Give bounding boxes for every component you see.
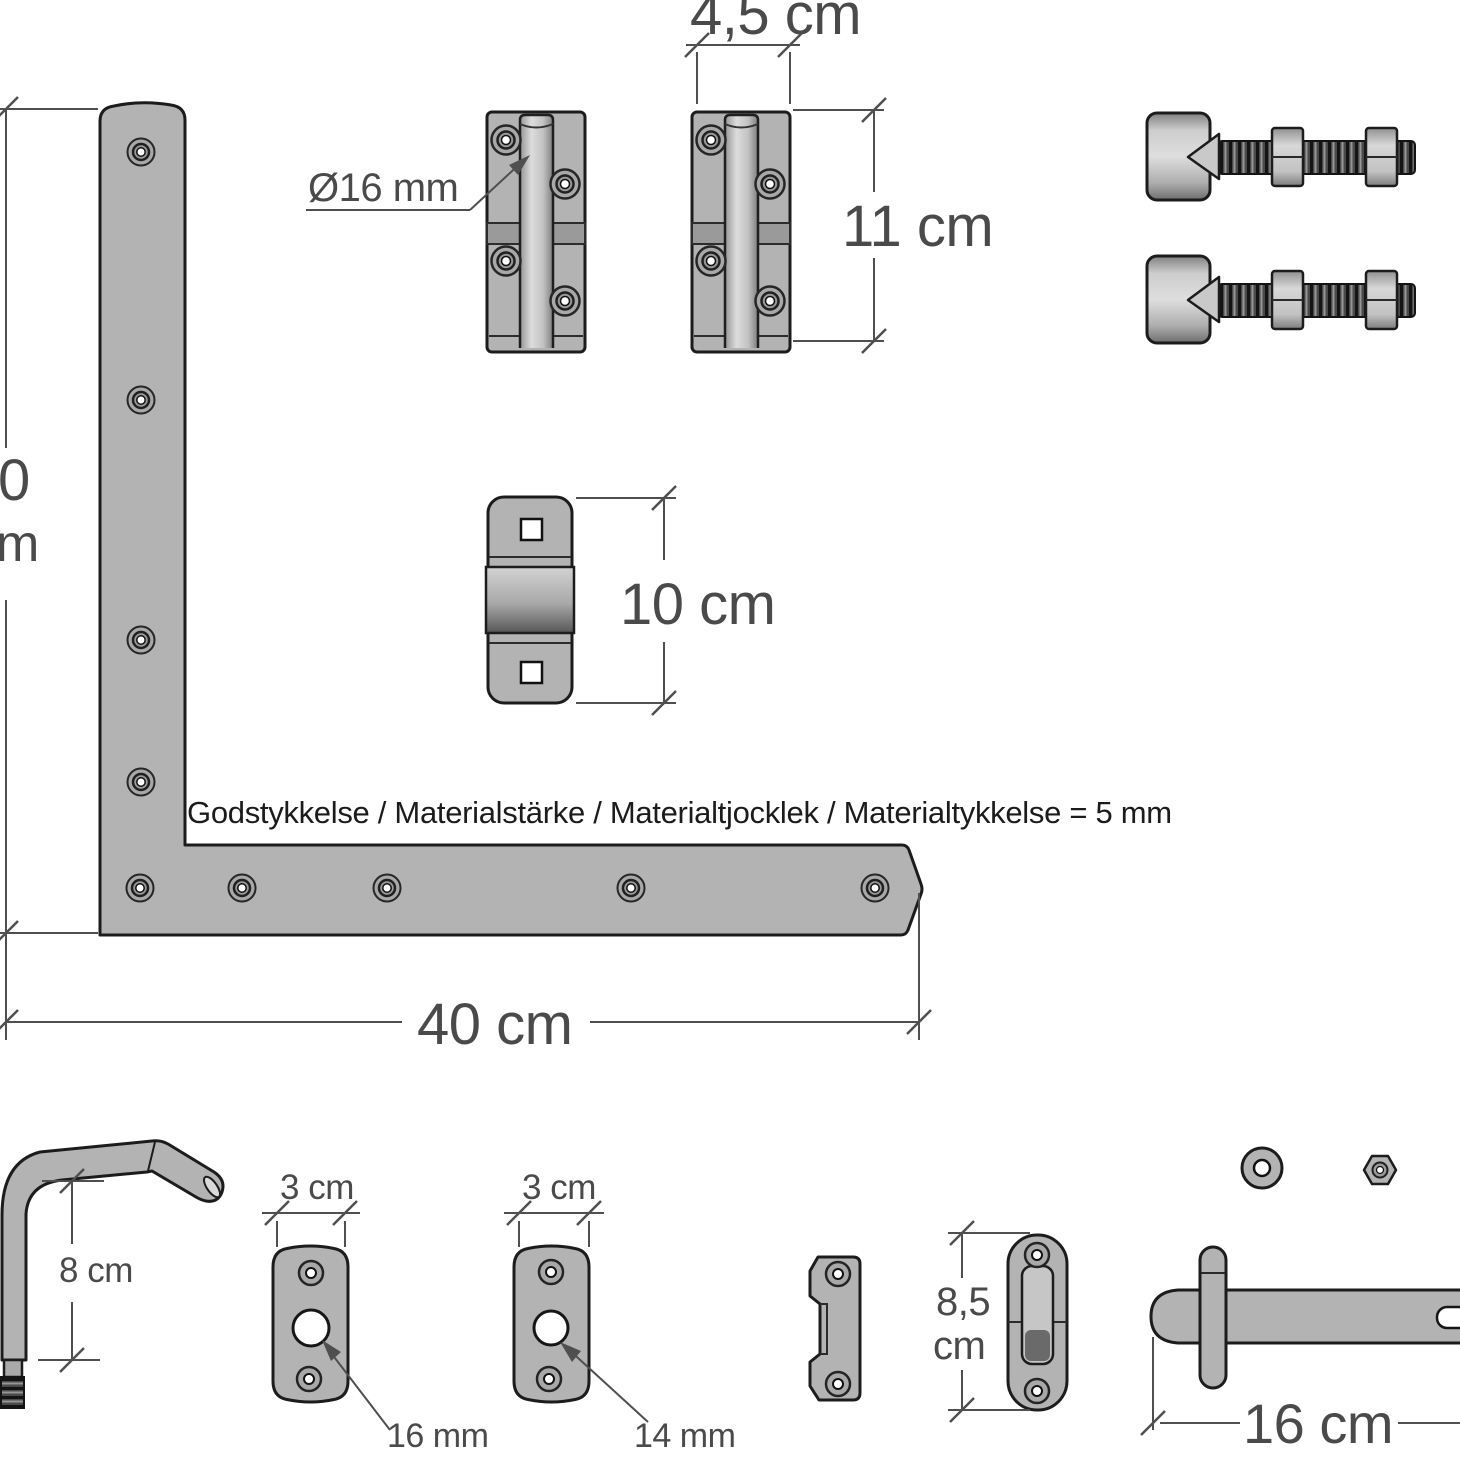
hardware-drawing	[0, 0, 1460, 1460]
label-latch-keeper-height-unit: cm	[933, 1326, 985, 1366]
technical-drawing-canvas: 4,5 cm 11 cm Ø16 mm 0 m 10 cm Godstykkel…	[0, 0, 1460, 1460]
adjustable-hinge-bolt-top	[1147, 113, 1415, 200]
screw-hole	[618, 875, 645, 902]
latch-keeper-side-view	[810, 1257, 860, 1400]
screw-hole	[128, 627, 155, 654]
screw-hole	[297, 1367, 321, 1391]
adjustable-hinge-bolt-bottom	[1147, 256, 1415, 343]
screw-hole	[826, 1372, 850, 1396]
dimension-plate1-width	[262, 1201, 360, 1247]
drop-bolt-bar	[1151, 1290, 1460, 1343]
label-keeper-height: 10 cm	[620, 576, 775, 634]
latch-keeper-front-view	[1008, 1235, 1067, 1410]
label-drop-bolt-length: 16 cm	[1243, 1396, 1393, 1452]
label-hinge-width: 4,5 cm	[690, 0, 861, 44]
square-hole	[521, 519, 542, 540]
label-plate1-hole: 16 mm	[387, 1419, 488, 1453]
center-hole-14mm	[534, 1311, 568, 1345]
label-plate2-hole: 14 mm	[634, 1419, 735, 1453]
label-plate1-width: 3 cm	[280, 1170, 354, 1205]
label-strap-height-clipped-unit: m	[0, 518, 39, 570]
square-hole	[521, 662, 542, 683]
label-latch-keeper-height-value: 8,5	[936, 1282, 990, 1322]
mounting-plate-16mm	[273, 1246, 348, 1402]
pin-thread	[1, 1377, 24, 1408]
label-material-note: Godstykkelse / Materialstärke / Material…	[187, 797, 1172, 828]
label-pin-diameter: Ø16 mm	[308, 168, 458, 208]
hinge-keeper-plate	[486, 497, 574, 703]
hinge-block-right	[692, 112, 790, 352]
washer	[1242, 1148, 1282, 1188]
drop-bolt-slot	[1437, 1307, 1460, 1328]
label-plate2-width: 3 cm	[522, 1170, 596, 1205]
keeper-channel-shadow	[1025, 1330, 1050, 1361]
label-strap-height-clipped-value: 0	[0, 452, 30, 510]
keeper-barrel	[486, 567, 574, 633]
screw-hole	[299, 1261, 323, 1285]
screw-hole	[826, 1262, 850, 1286]
screw-hole	[1025, 1379, 1049, 1403]
screw-hole	[539, 1260, 563, 1284]
label-hinge-height: 11 cm	[842, 198, 993, 256]
mounting-plate-14mm	[514, 1246, 589, 1402]
label-pin-height: 8 cm	[59, 1253, 133, 1288]
screw-hole	[128, 387, 155, 414]
screw-hole	[1025, 1243, 1049, 1267]
screw-hole	[229, 875, 256, 902]
screw-hole	[127, 875, 154, 902]
screw-hole	[862, 875, 889, 902]
screw-hole	[374, 875, 401, 902]
label-strap-length: 40 cm	[417, 996, 572, 1054]
screw-hole	[537, 1367, 561, 1391]
dimension-plate2-width	[504, 1201, 604, 1247]
pin-neck	[4, 1360, 22, 1377]
center-hole-16mm	[293, 1310, 329, 1346]
drop-bolt	[1151, 1247, 1460, 1388]
screw-hole	[128, 139, 155, 166]
hex-nut	[1364, 1156, 1396, 1184]
hinge-block-left	[487, 112, 585, 352]
screw-hole	[128, 769, 155, 796]
drop-bolt-handle	[1200, 1247, 1226, 1388]
